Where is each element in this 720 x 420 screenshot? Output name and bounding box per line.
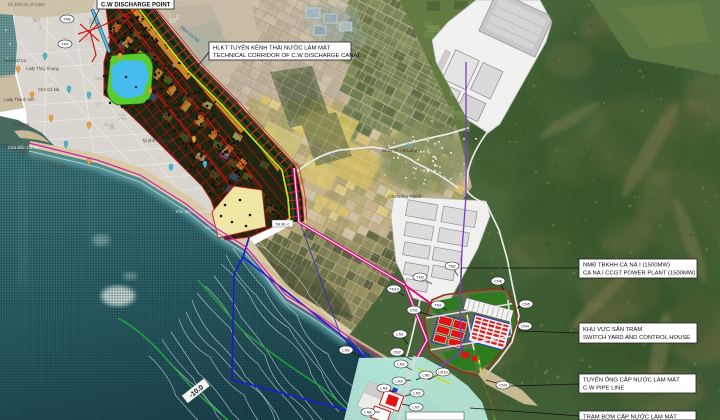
svg-text:Tp phố Lộng Gió: Tp phố Lộng Gió <box>142 138 174 143</box>
svg-text:LN4: LN4 <box>380 386 388 391</box>
svg-text:Cửa Biển Cà Ná: Cửa Biển Cà Ná <box>8 145 39 150</box>
svg-text:CN6: CN6 <box>494 279 502 284</box>
svg-text:bể 200 m2 of Gành: bể 200 m2 of Gành <box>8 2 45 7</box>
svg-text:LN2: LN2 <box>397 362 404 367</box>
svg-text:Chợ Cà Ná: Chợ Cà Ná <box>38 87 60 92</box>
svg-text:TN2: TN2 <box>448 264 455 269</box>
svg-text:CN5: CN5 <box>522 302 530 307</box>
svg-text:CN4: CN4 <box>521 324 530 329</box>
svg-text:LN1: LN1 <box>396 332 403 337</box>
svg-text:LN5: LN5 <box>413 391 420 396</box>
svg-text:TN6: TN6 <box>63 17 70 22</box>
svg-text:Seafood Co.: Seafood Co. <box>4 58 27 63</box>
svg-text:CN3: CN3 <box>499 383 507 388</box>
svg-text:TN7: TN7 <box>61 42 68 47</box>
svg-text:Cầu Đồng Thanh: Cầu Đồng Thanh <box>388 194 422 199</box>
svg-text:TN1: TN1 <box>434 303 441 308</box>
svg-text:TN10: TN10 <box>389 287 399 292</box>
svg-text:CN1: CN1 <box>410 308 418 313</box>
svg-text:Lady Thùy Khang: Lady Thùy Khang <box>26 66 59 71</box>
svg-text:Chùa Thanh Long: Chùa Thanh Long <box>382 148 418 153</box>
svg-text:Lady Thanh Xen: Lady Thanh Xen <box>4 97 35 102</box>
svg-text:TN3: TN3 <box>416 275 423 280</box>
svg-text:LN3: LN3 <box>395 379 402 384</box>
svg-text:CN2: CN2 <box>393 350 401 355</box>
svg-text:TM ML-C: TM ML-C <box>275 222 290 226</box>
svg-text:Tia Mạny: Tia Mạny <box>12 122 30 127</box>
